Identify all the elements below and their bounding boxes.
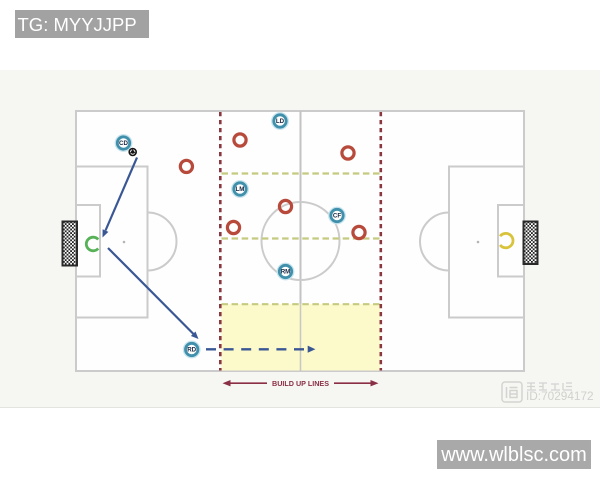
svg-text:CF: CF xyxy=(333,213,341,220)
svg-text:CD: CD xyxy=(119,140,128,147)
svg-text:ID:70294172: ID:70294172 xyxy=(526,389,594,403)
svg-text:LM: LM xyxy=(236,186,245,193)
svg-text:RM: RM xyxy=(281,269,291,276)
svg-text:LD: LD xyxy=(276,118,285,125)
svg-text:RD: RD xyxy=(187,347,196,354)
svg-text:BUILD UP LINES: BUILD UP LINES xyxy=(272,379,329,388)
